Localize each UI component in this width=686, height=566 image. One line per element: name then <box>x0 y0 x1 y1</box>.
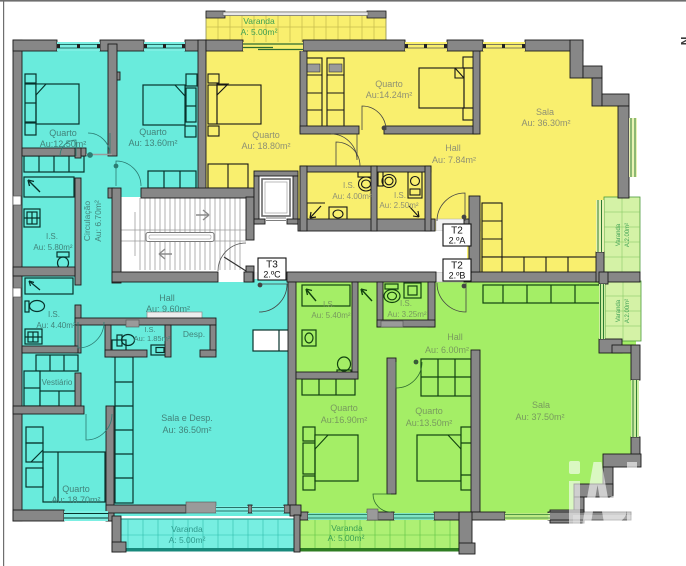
svg-text:Au: 4.00m²: Au: 4.00m² <box>332 192 371 201</box>
svg-text:Sala e Desp.: Sala e Desp. <box>161 413 213 423</box>
svg-text:2.ºC: 2.ºC <box>263 270 281 280</box>
svg-text:Au: 5.80m²: Au: 5.80m² <box>33 243 72 252</box>
svg-text:Quarto: Quarto <box>62 484 90 494</box>
svg-text:Varanda: Varanda <box>331 523 363 533</box>
svg-text:N: N <box>678 37 686 46</box>
svg-text:Au: 13.60m²: Au: 13.60m² <box>128 138 177 148</box>
svg-text:2.ºB: 2.ºB <box>449 271 466 281</box>
svg-text:Au: 3.25m²: Au: 3.25m² <box>387 310 426 319</box>
svg-text:Au:14.24m²: Au:14.24m² <box>366 90 413 100</box>
svg-text:I.S.: I.S. <box>144 325 155 334</box>
svg-text:Hall: Hall <box>159 293 175 303</box>
svg-text:Quarto: Quarto <box>252 130 280 140</box>
svg-text:I.S.: I.S. <box>48 310 60 319</box>
svg-text:Quarto: Quarto <box>375 79 403 89</box>
svg-text:Au:12.50m²: Au:12.50m² <box>40 139 87 149</box>
svg-text:Vestiário: Vestiário <box>42 378 73 387</box>
svg-text:I.S.: I.S. <box>323 300 335 309</box>
svg-text:Au: 7.84m²: Au: 7.84m² <box>432 155 476 165</box>
svg-text:Au: 18.70m²: Au: 18.70m² <box>51 495 100 505</box>
svg-text:Varanda: Varanda <box>616 223 622 246</box>
svg-text:Au: 4.40m²: Au: 4.40m² <box>36 321 75 330</box>
svg-text:Au: 6.70m²: Au: 6.70m² <box>93 200 103 242</box>
svg-text:Circulação: Circulação <box>82 201 92 241</box>
svg-text:Varanda: Varanda <box>171 524 203 534</box>
svg-text:A: 5.00m²: A: 5.00m² <box>241 27 278 37</box>
svg-text:A: 5.00m²: A: 5.00m² <box>169 535 206 545</box>
svg-text:Au:16.90m²: Au:16.90m² <box>321 415 368 425</box>
svg-text:Au: 5.40m²: Au: 5.40m² <box>311 311 350 320</box>
svg-text:Quarto: Quarto <box>49 128 77 138</box>
svg-text:Au: 2.50m²: Au: 2.50m² <box>379 201 418 210</box>
svg-text:Au: 9.60m²: Au: 9.60m² <box>146 304 190 314</box>
svg-text:Quarto: Quarto <box>330 403 358 413</box>
svg-text:Desp.: Desp. <box>183 329 205 339</box>
svg-text:Sala: Sala <box>532 400 550 410</box>
svg-text:A: 5.00m²: A: 5.00m² <box>328 533 365 543</box>
svg-text:Hall: Hall <box>447 332 463 342</box>
svg-text:I.S.: I.S. <box>400 299 412 308</box>
svg-text:I.S.: I.S. <box>343 181 355 190</box>
svg-text:Au: 6.00m²: Au: 6.00m² <box>425 345 469 355</box>
svg-text:Au: 37.50m²: Au: 37.50m² <box>515 412 564 422</box>
svg-text:Sala: Sala <box>536 107 554 117</box>
svg-text:I.S.: I.S. <box>394 191 406 200</box>
svg-text:Hall: Hall <box>445 143 461 153</box>
svg-text:Au: 18.80m²: Au: 18.80m² <box>241 141 290 151</box>
svg-text:I.S.: I.S. <box>46 232 58 241</box>
svg-text:Varanda: Varanda <box>243 16 275 26</box>
svg-text:2.ºA: 2.ºA <box>449 236 466 246</box>
svg-text:Quarto: Quarto <box>415 406 443 416</box>
svg-text:Quarto: Quarto <box>139 127 167 137</box>
svg-text:A:2.00m²: A:2.00m² <box>625 299 631 323</box>
svg-text:Au: 36.50m²: Au: 36.50m² <box>162 425 211 435</box>
svg-text:Au:13.50m²: Au:13.50m² <box>406 418 453 428</box>
svg-text:Au: 1.85m²: Au: 1.85m² <box>134 334 171 343</box>
svg-text:Au: 36.30m²: Au: 36.30m² <box>521 118 570 128</box>
svg-text:Varanda: Varanda <box>616 299 622 322</box>
svg-text:A:2.00m²: A:2.00m² <box>625 223 631 247</box>
